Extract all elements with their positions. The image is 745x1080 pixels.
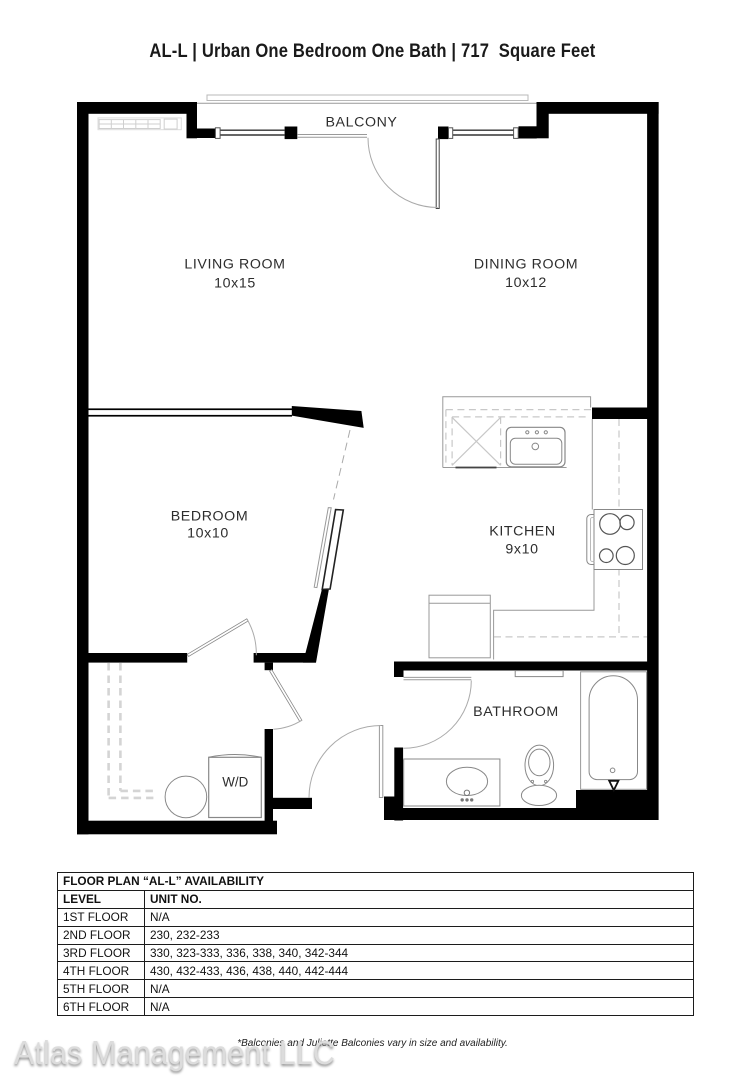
svg-text:BATHROOM: BATHROOM [473,704,559,720]
svg-text:BALCONY: BALCONY [325,115,397,131]
svg-text:DINING ROOM: DINING ROOM [474,257,578,273]
svg-text:10x12: 10x12 [505,275,547,291]
svg-text:9x10: 9x10 [505,542,538,558]
svg-text:10x10: 10x10 [187,526,229,542]
svg-text:BEDROOM: BEDROOM [171,509,249,525]
svg-text:W/D: W/D [222,774,248,789]
svg-text:LIVING ROOM: LIVING ROOM [184,257,285,273]
svg-text:10x15: 10x15 [214,276,256,292]
svg-text:KITCHEN: KITCHEN [489,524,555,540]
